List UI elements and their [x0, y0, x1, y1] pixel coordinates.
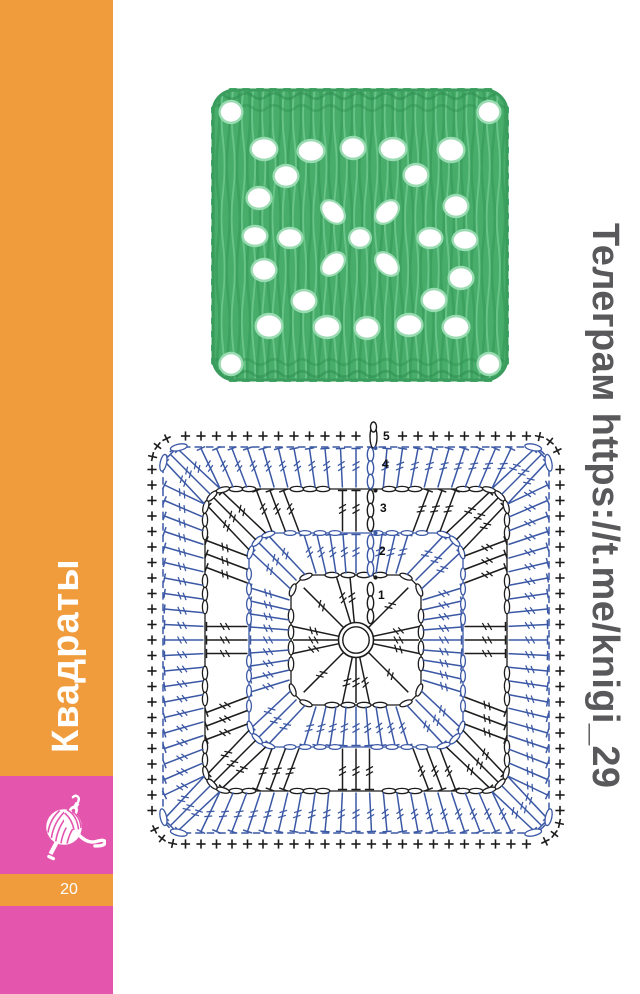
svg-text:2: 2 — [379, 544, 386, 558]
svg-text:5: 5 — [383, 429, 390, 443]
svg-text:1: 1 — [378, 588, 385, 602]
svg-text:4: 4 — [382, 457, 389, 471]
svg-text:3: 3 — [380, 501, 387, 515]
